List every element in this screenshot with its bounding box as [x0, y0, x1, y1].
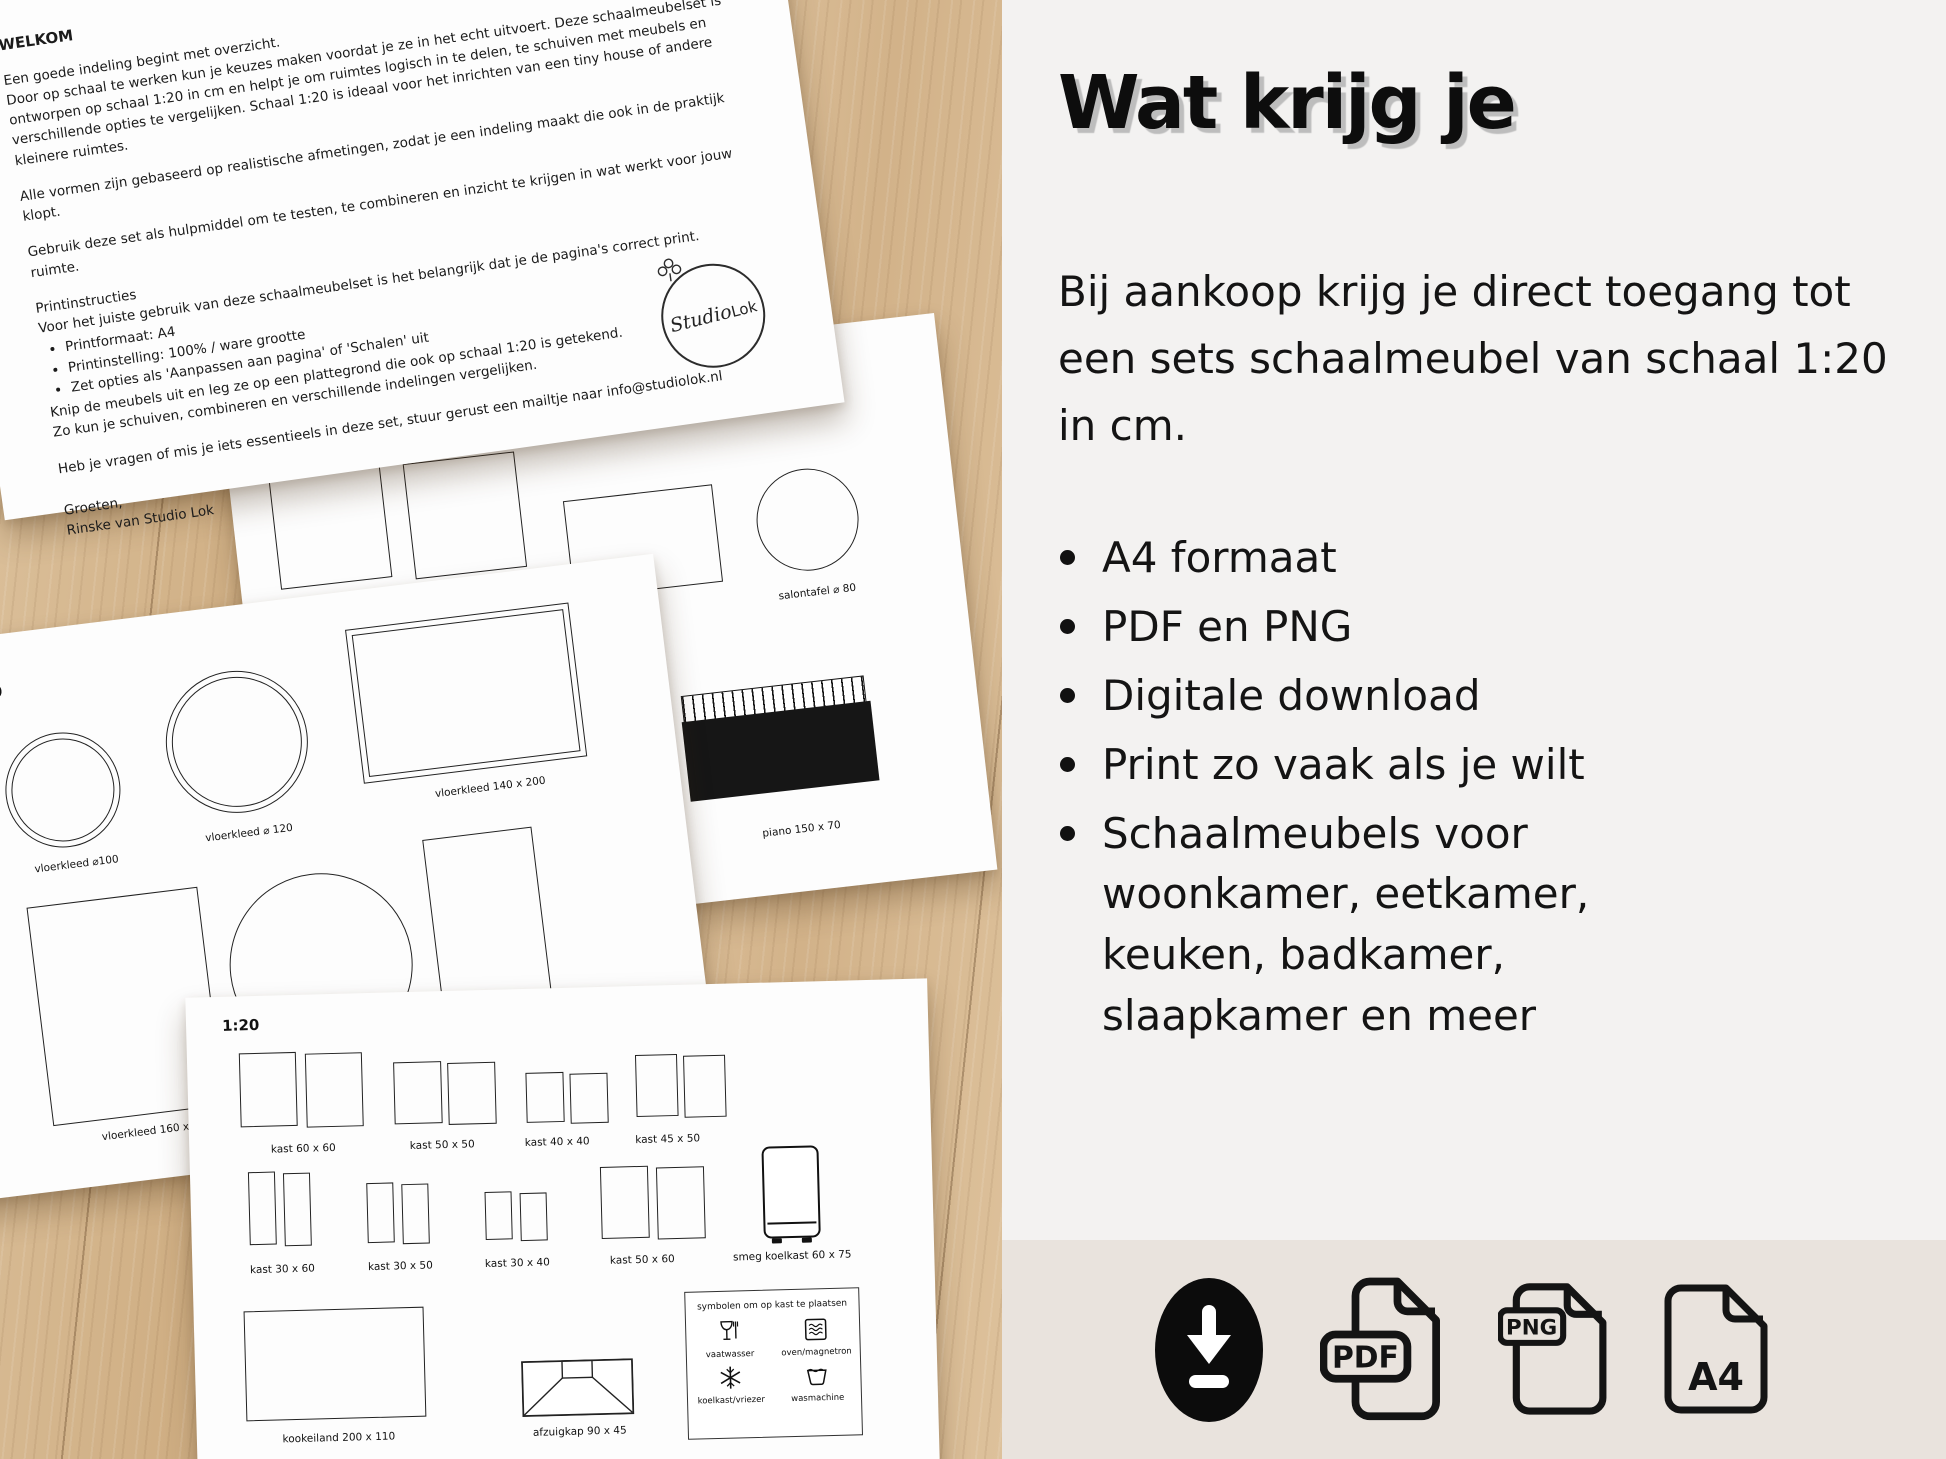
kast	[525, 1072, 564, 1123]
shape-label: kast 60 x 60	[233, 1141, 373, 1157]
shape-label: salontafel ⌀ 80	[745, 578, 890, 606]
feature-item: A4 formaat	[1102, 528, 1742, 589]
kast	[283, 1173, 312, 1247]
logo-print-text: Lok	[729, 297, 759, 321]
shape-label: afzuigkap 90 x 45	[515, 1424, 645, 1439]
a4-file-icon: A4	[1664, 1276, 1770, 1424]
kast	[239, 1052, 298, 1127]
shape-label: kast 45 x 50	[610, 1132, 725, 1147]
shape-label: kast 30 x 60	[217, 1262, 347, 1277]
kast	[366, 1182, 395, 1243]
feature-item: PDF en PNG	[1102, 597, 1742, 658]
logo-script-text: Studio	[668, 300, 734, 336]
panel-intro: Bij aankoop krijg je direct toegang tot …	[1058, 258, 1908, 460]
kast	[447, 1062, 497, 1125]
feature-item: Digitale download	[1102, 666, 1742, 727]
shape-label: kast 50 x 60	[577, 1252, 707, 1267]
vloerkleed-round	[158, 663, 316, 821]
symbols-box: symbolen om op kast te plaatsen vaatwass…	[684, 1287, 863, 1440]
svg-text:PNG: PNG	[1506, 1315, 1557, 1340]
kast	[248, 1172, 277, 1246]
scale-label: 1:20	[222, 1016, 260, 1035]
kast	[683, 1055, 727, 1118]
oven-microwave-icon	[804, 1317, 828, 1342]
kast	[600, 1166, 650, 1239]
vloerkleed-round	[0, 726, 127, 854]
kast	[635, 1054, 679, 1117]
vloerkleed-rect	[345, 602, 587, 783]
shape-label: kast 30 x 40	[457, 1256, 577, 1271]
shape-label: kast 40 x 40	[502, 1135, 612, 1150]
printable-page-kasten: 1:20 kast 60 x 60 kast 50 x 50 kast 40 x…	[185, 978, 940, 1459]
scale-label: 1:20	[0, 682, 3, 704]
symbols-title: symbolen om op kast te plaatsen	[685, 1298, 858, 1313]
kast	[569, 1073, 608, 1124]
kast	[401, 1184, 430, 1245]
product-image: 1:20 salontafel 80 x 80 salontafel ⌀ 80 …	[0, 0, 1946, 1459]
shape-label: vloerkleed ⌀ 120	[154, 816, 344, 851]
wood-table-photo: 1:20 salontafel 80 x 80 salontafel ⌀ 80 …	[0, 0, 1002, 1459]
download-icon	[1152, 1275, 1266, 1425]
washer-tub-icon	[805, 1363, 829, 1388]
shape-label: kast 30 x 50	[335, 1259, 465, 1274]
kast	[393, 1061, 443, 1124]
welcome-letter: WELKOM Een goede indeling begint met ove…	[0, 0, 845, 520]
dishwasher-icon	[718, 1319, 741, 1344]
vloerkleed-rect	[422, 827, 553, 1014]
clover-icon	[653, 253, 687, 287]
shape-label: kookeiland 200 x 110	[249, 1430, 429, 1447]
smeg-fridge	[761, 1145, 820, 1238]
feature-list: A4 formaat PDF en PNG Digitale download …	[1102, 528, 1742, 1055]
kast	[656, 1166, 706, 1239]
panel-heading: Wat krijg je	[1058, 60, 1515, 146]
feature-item: Print zo vaak als je wilt	[1102, 735, 1742, 796]
afzuigkap-shape	[521, 1358, 634, 1417]
symbol-oven: oven/magnetron	[772, 1316, 860, 1358]
symbol-wasmachine: wasmachine	[774, 1362, 862, 1404]
pdf-file-icon: PDF	[1320, 1276, 1444, 1424]
symbol-vaatwasser: vaatwasser	[686, 1319, 774, 1361]
kast	[305, 1052, 364, 1127]
shape-label: kast 50 x 50	[382, 1138, 502, 1153]
kast	[520, 1192, 548, 1241]
shape-label: piano 150 x 70	[721, 814, 881, 844]
kookeiland	[244, 1307, 427, 1422]
shape-label: vloerkleed ⌀100	[0, 847, 172, 882]
symbol-koelkast: koelkast/vriezer	[687, 1365, 775, 1407]
feature-item: Schaalmeubels voor woonkamer, eetkamer, …	[1102, 804, 1742, 1048]
filetype-strip: PDF PNG A4	[1002, 1240, 1946, 1459]
snowflake-icon	[718, 1365, 743, 1390]
salontafel-round	[751, 463, 864, 576]
png-file-icon: PNG	[1498, 1278, 1610, 1422]
shape-label: smeg koelkast 60 x 75	[717, 1248, 867, 1264]
info-panel: Wat krijg je Bij aankoop krijg je direct…	[1002, 0, 1946, 1240]
kast	[485, 1191, 513, 1240]
svg-text:PDF: PDF	[1332, 1340, 1399, 1375]
svg-text:A4: A4	[1688, 1355, 1744, 1399]
